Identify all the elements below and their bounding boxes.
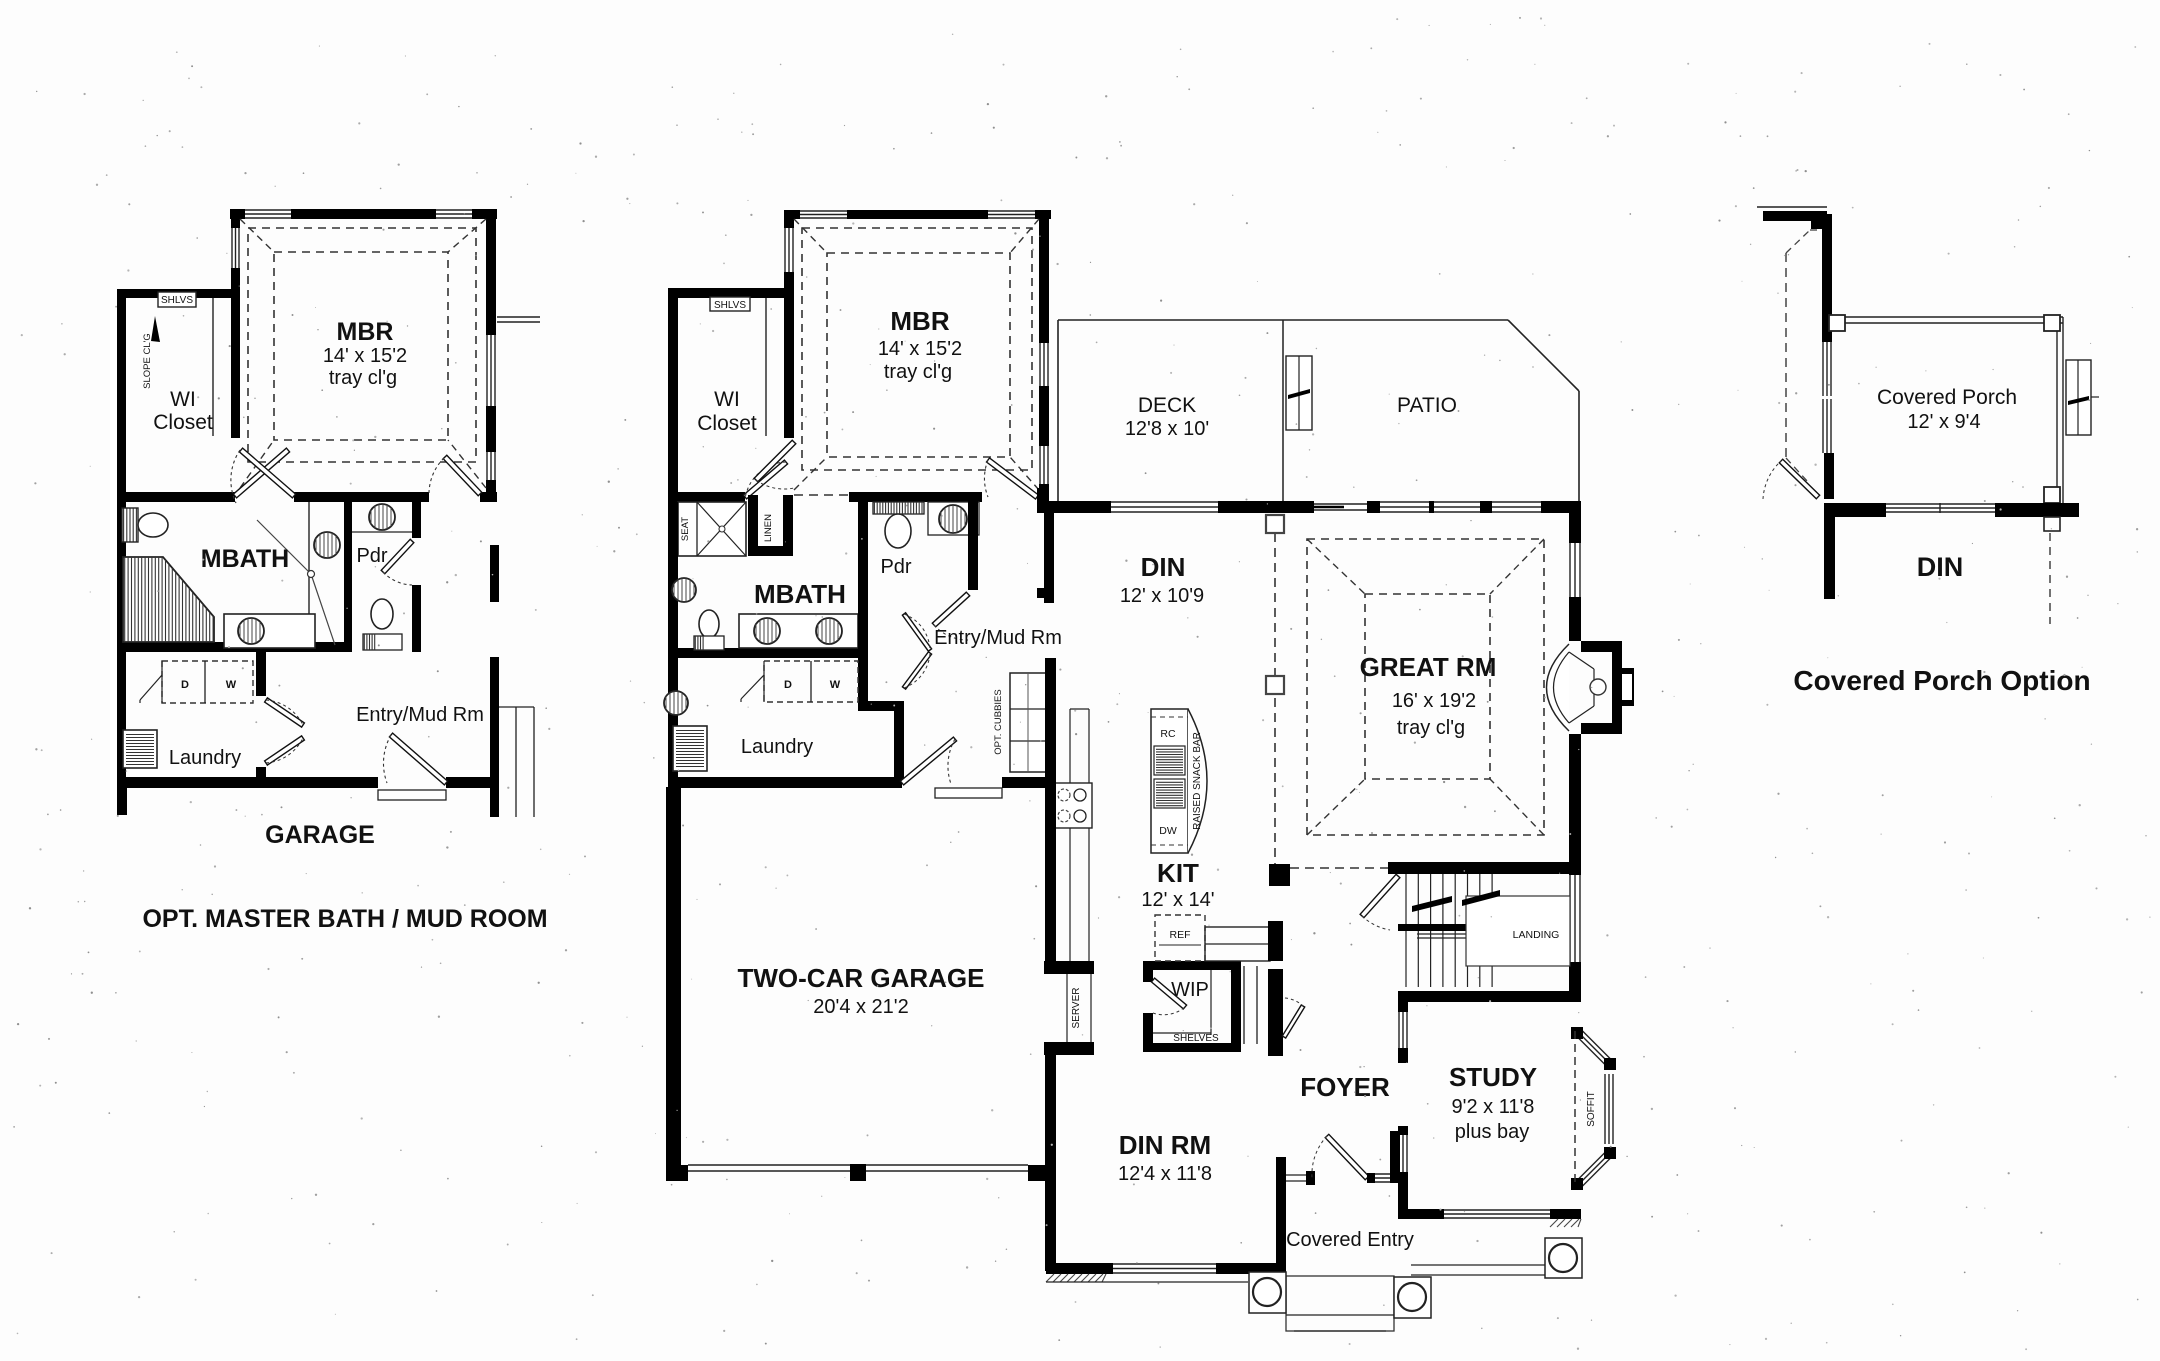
svg-text:W: W — [226, 679, 237, 691]
svg-text:TWO-CAR GARAGE: TWO-CAR GARAGE — [738, 963, 985, 993]
svg-text:WIP: WIP — [1171, 979, 1209, 1001]
svg-text:OPT. MASTER BATH / MUD ROOM: OPT. MASTER BATH / MUD ROOM — [142, 905, 547, 933]
svg-text:20'4 x 21'2: 20'4 x 21'2 — [813, 996, 909, 1018]
svg-text:SHELVES: SHELVES — [1173, 1033, 1219, 1044]
svg-text:tray cl'g: tray cl'g — [884, 361, 952, 383]
svg-text:14' x 15'2: 14' x 15'2 — [323, 345, 407, 367]
svg-text:SHLVS: SHLVS — [161, 295, 193, 306]
svg-text:D: D — [784, 679, 792, 691]
svg-text:GREAT RM: GREAT RM — [1360, 652, 1497, 682]
svg-text:16' x 19'2: 16' x 19'2 — [1392, 690, 1476, 712]
svg-text:Entry/Mud Rm: Entry/Mud Rm — [356, 704, 484, 726]
svg-text:14' x 15'2: 14' x 15'2 — [878, 338, 962, 360]
svg-text:Covered Porch: Covered Porch — [1877, 386, 2017, 409]
svg-text:Laundry: Laundry — [169, 747, 241, 769]
svg-text:tray cl'g: tray cl'g — [329, 367, 397, 389]
svg-text:9'2 x 11'8: 9'2 x 11'8 — [1452, 1096, 1535, 1118]
svg-text:12'4 x 11'8: 12'4 x 11'8 — [1118, 1163, 1212, 1185]
svg-text:DIN RM: DIN RM — [1119, 1130, 1211, 1160]
svg-text:tray cl'g: tray cl'g — [1397, 717, 1465, 739]
svg-text:SEAT: SEAT — [680, 517, 691, 541]
svg-text:FOYER: FOYER — [1300, 1072, 1390, 1102]
svg-text:plus bay: plus bay — [1455, 1121, 1530, 1143]
svg-text:Covered Porch Option: Covered Porch Option — [1793, 665, 2090, 696]
svg-text:D: D — [181, 679, 189, 691]
svg-text:OPT. CUBBIES: OPT. CUBBIES — [993, 689, 1004, 754]
svg-text:MBR: MBR — [890, 306, 949, 336]
svg-text:RAISED SNACK BAR: RAISED SNACK BAR — [1192, 732, 1203, 830]
svg-text:RC: RC — [1160, 728, 1176, 740]
svg-text:REF: REF — [1170, 929, 1191, 941]
svg-text:DW: DW — [1159, 825, 1177, 837]
svg-text:Laundry: Laundry — [741, 736, 813, 758]
svg-text:STUDY: STUDY — [1449, 1062, 1537, 1092]
svg-text:KIT: KIT — [1157, 858, 1199, 888]
svg-text:GARAGE: GARAGE — [265, 821, 375, 849]
svg-text:Entry/Mud Rm: Entry/Mud Rm — [934, 627, 1062, 649]
svg-text:SOFFIT: SOFFIT — [1586, 1091, 1597, 1127]
svg-text:LANDING: LANDING — [1513, 929, 1560, 941]
svg-text:Closet: Closet — [153, 411, 213, 434]
svg-text:PATIO: PATIO — [1397, 394, 1457, 417]
svg-text:WI: WI — [170, 388, 196, 411]
svg-text:SLOPE CL'G: SLOPE CL'G — [142, 333, 153, 389]
svg-text:Pdr: Pdr — [356, 545, 387, 567]
svg-text:LINEN: LINEN — [763, 514, 774, 542]
svg-text:12' x 14': 12' x 14' — [1141, 889, 1214, 911]
svg-text:Closet: Closet — [697, 412, 757, 435]
svg-text:12' x 10'9: 12' x 10'9 — [1120, 585, 1204, 607]
svg-text:Covered Entry: Covered Entry — [1286, 1229, 1414, 1251]
svg-text:DIN: DIN — [1917, 552, 1964, 582]
svg-text:MBATH: MBATH — [201, 545, 289, 573]
svg-text:SHLVS: SHLVS — [714, 300, 746, 311]
svg-text:DECK: DECK — [1138, 394, 1196, 417]
svg-text:Pdr: Pdr — [880, 556, 911, 578]
svg-text:MBATH: MBATH — [754, 579, 846, 609]
svg-text:12'8 x 10': 12'8 x 10' — [1125, 418, 1209, 440]
svg-text:W: W — [830, 679, 841, 691]
svg-text:SERVER: SERVER — [1071, 988, 1082, 1029]
svg-text:DIN: DIN — [1141, 552, 1186, 582]
svg-text:MBR: MBR — [337, 318, 394, 346]
svg-text:12' x 9'4: 12' x 9'4 — [1907, 411, 1980, 433]
svg-text:WI: WI — [714, 388, 740, 411]
